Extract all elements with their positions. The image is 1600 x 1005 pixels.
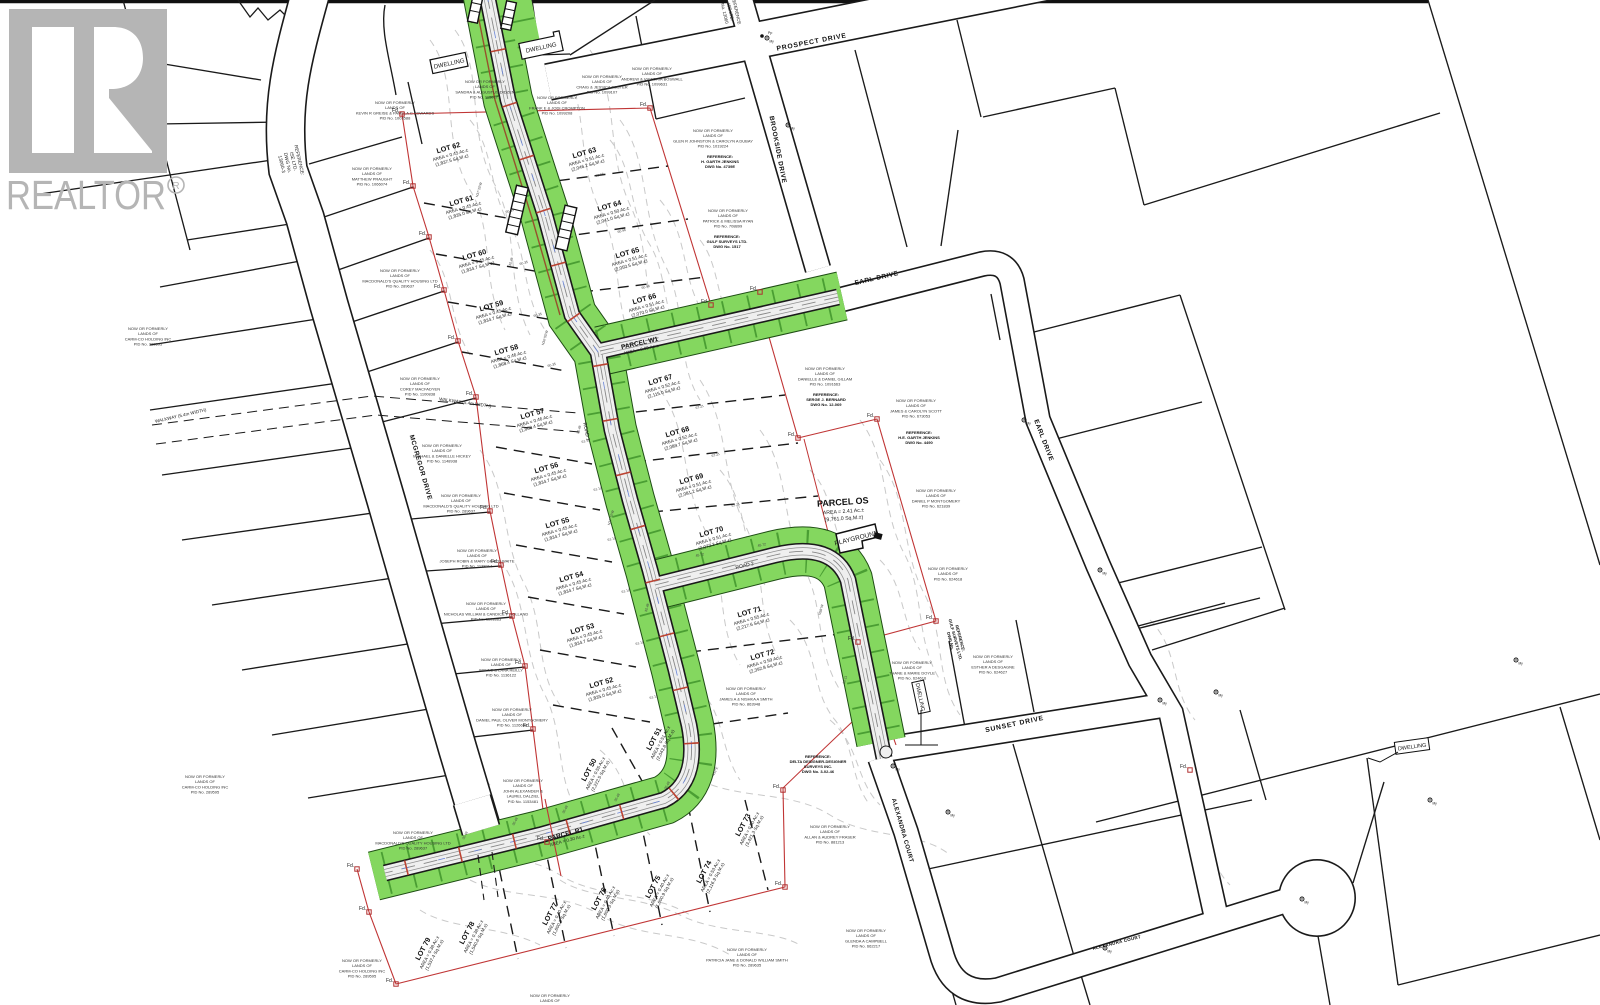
- svg-text:Fd.: Fd.: [491, 559, 498, 565]
- svg-text:Fd.: Fd.: [386, 978, 393, 984]
- svg-text:My: My: [1219, 694, 1224, 698]
- svg-text:Fd.: Fd.: [775, 881, 782, 887]
- svg-text:Fd.: Fd.: [466, 391, 473, 397]
- svg-text:Fd.: Fd.: [502, 610, 509, 616]
- svg-text:Fd.: Fd.: [867, 413, 874, 419]
- svg-text:Fd.: Fd.: [773, 784, 780, 790]
- svg-text:My: My: [1103, 572, 1108, 576]
- svg-text:Pp: Pp: [768, 31, 772, 35]
- svg-text:REALTOR: REALTOR: [6, 172, 166, 218]
- svg-text:Fd.: Fd.: [848, 636, 855, 642]
- svg-text:NOW OR FORMERLYLANDS OFMATTHEW: NOW OR FORMERLYLANDS OFMATTHEW PRAUGHTPI…: [352, 166, 393, 187]
- svg-text:NOW OR FORMERLYLANDS OFCOREY M: NOW OR FORMERLYLANDS OFCOREY MACFADYENPI…: [400, 376, 440, 397]
- svg-text:Fd.: Fd.: [419, 231, 426, 237]
- svg-text:My: My: [1108, 950, 1113, 954]
- svg-text:My: My: [896, 768, 901, 772]
- svg-text:Fd.: Fd.: [537, 836, 544, 842]
- svg-text:R: R: [172, 181, 179, 192]
- svg-text:My: My: [1027, 422, 1032, 426]
- svg-text:Fd.: Fd.: [392, 108, 399, 114]
- svg-text:My: My: [770, 40, 775, 44]
- svg-text:Fd.: Fd.: [480, 505, 487, 511]
- svg-text:Fd.: Fd.: [347, 863, 354, 869]
- svg-text:My: My: [1433, 802, 1438, 806]
- svg-text:Fd.: Fd.: [359, 906, 366, 912]
- svg-text:Fd.: Fd.: [640, 102, 647, 108]
- svg-text:My: My: [951, 814, 956, 818]
- svg-text:My: My: [1519, 662, 1524, 666]
- svg-text:Fd.: Fd.: [788, 432, 795, 438]
- svg-text:My: My: [791, 127, 796, 131]
- svg-text:My: My: [1305, 901, 1310, 905]
- svg-text:Fd.: Fd.: [434, 284, 441, 290]
- svg-text:Fd.: Fd.: [926, 615, 933, 621]
- svg-text:NOW OR FORMERLYLANDS OFJOHN AL: NOW OR FORMERLYLANDS OFJOHN ALEXANDER &L…: [503, 778, 543, 804]
- svg-text:Fd.: Fd.: [403, 180, 410, 186]
- svg-text:Fd.: Fd.: [750, 286, 757, 292]
- svg-text:Fd.: Fd.: [1180, 764, 1187, 770]
- svg-text:My: My: [1163, 702, 1168, 706]
- svg-text:Fd.: Fd.: [515, 660, 522, 666]
- svg-text:Fd.: Fd.: [448, 335, 455, 341]
- svg-text:Fd.: Fd.: [701, 299, 708, 305]
- svg-text:Fd.: Fd.: [523, 723, 530, 729]
